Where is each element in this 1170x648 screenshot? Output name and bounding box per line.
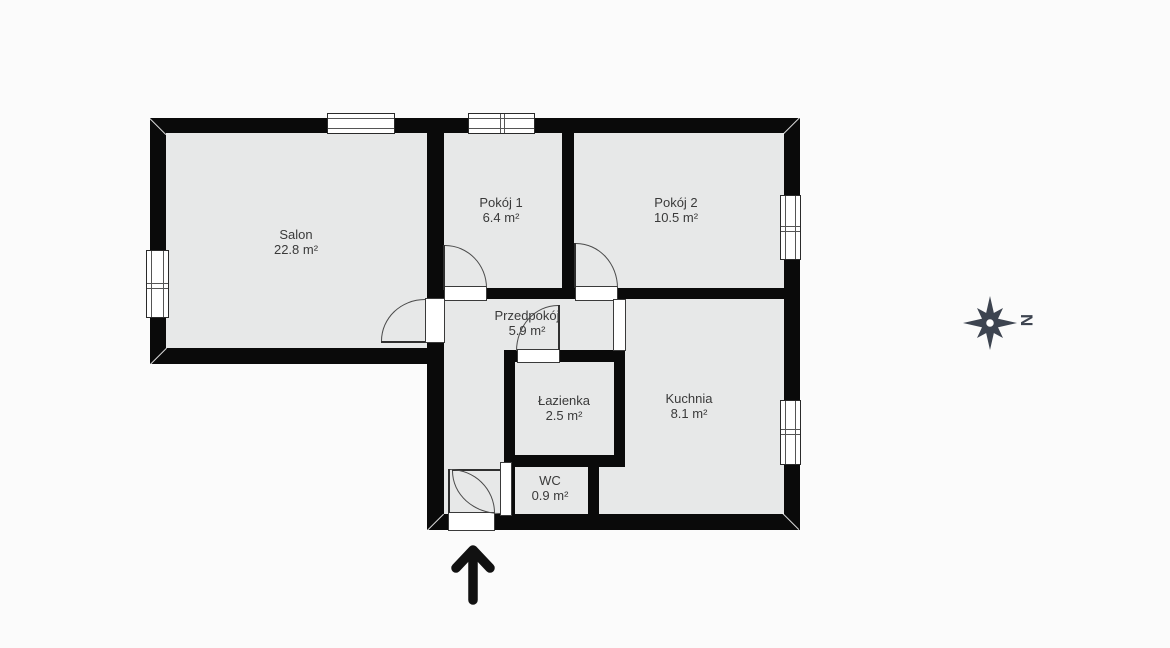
door-threshold-pokoj2 [575, 286, 618, 301]
room-name: Pokój 1 [479, 195, 522, 210]
window-frame-line [469, 118, 534, 119]
window-divider [781, 226, 800, 227]
wall-salon-pokoj1 [427, 133, 444, 299]
window-divider [147, 283, 168, 284]
door-threshold-wc [500, 462, 512, 516]
window-pokoj1-top [468, 113, 535, 134]
door-threshold-pokoj1 [444, 286, 487, 301]
window-frame-line [795, 401, 796, 464]
doorway-kuchnia [613, 299, 626, 351]
wall-lazienka-right [614, 350, 625, 467]
room-area: 6.4 m² [479, 210, 522, 225]
door-leaf-salon [381, 341, 425, 343]
window-frame-line [469, 128, 534, 129]
room-area: 5.9 m² [494, 323, 559, 338]
wall-salon-bottom [150, 348, 444, 364]
room-name: Przedpokój [494, 308, 559, 323]
room-area: 22.8 m² [274, 242, 318, 257]
wall-wc-right [588, 458, 599, 518]
room-name: Salon [274, 227, 318, 242]
room-name: Pokój 2 [654, 195, 698, 210]
floor-plan: Salon 22.8 m² Pokój 1 6.4 m² Pokój 2 10.… [0, 0, 1170, 648]
door-threshold-salon [425, 298, 445, 343]
room-area: 0.9 m² [532, 488, 569, 503]
wall-right [784, 118, 800, 530]
entrance-threshold [448, 512, 495, 531]
window-divider [500, 114, 501, 133]
door-threshold-lazienka [517, 349, 560, 363]
room-label-kuchnia: Kuchnia 8.1 m² [666, 391, 713, 421]
room-area: 8.1 m² [666, 406, 713, 421]
compass-north-label: N [1016, 314, 1036, 332]
window-pokoj2-right [780, 195, 801, 260]
window-divider [147, 288, 168, 289]
window-frame-line [328, 128, 394, 129]
room-name: Łazienka [538, 393, 590, 408]
window-salon-left [146, 250, 169, 318]
room-label-przedpokoj: Przedpokój 5.9 m² [494, 308, 559, 338]
window-kuchnia-right [780, 400, 801, 465]
wall-left [150, 118, 166, 364]
room-name: WC [532, 473, 569, 488]
room-area: 2.5 m² [538, 408, 590, 423]
floor-area-upper [150, 118, 800, 364]
room-area: 10.5 m² [654, 210, 698, 225]
room-label-salon: Salon 22.8 m² [274, 227, 318, 257]
wall-hall-middle [487, 288, 575, 299]
window-divider [504, 114, 505, 133]
room-label-pokoj2: Pokój 2 10.5 m² [654, 195, 698, 225]
window-frame-line [328, 118, 394, 119]
wall-corridor-left [427, 342, 444, 530]
window-frame-line [785, 196, 786, 259]
wall-pokoj1-pokoj2 [562, 133, 574, 299]
window-frame-line [795, 196, 796, 259]
window-frame-line [163, 251, 164, 317]
wall-hall-right [618, 288, 784, 299]
window-divider [781, 429, 800, 430]
window-frame-line [151, 251, 152, 317]
room-label-lazienka: Łazienka 2.5 m² [538, 393, 590, 423]
window-frame-line [785, 401, 786, 464]
window-divider [781, 231, 800, 232]
entrance-arrow-icon [445, 538, 501, 608]
room-label-pokoj1: Pokój 1 6.4 m² [479, 195, 522, 225]
room-label-wc: WC 0.9 m² [532, 473, 569, 503]
window-salon-top [327, 113, 395, 134]
room-name: Kuchnia [666, 391, 713, 406]
wall-lazienka-bottom [504, 455, 625, 467]
window-divider [781, 434, 800, 435]
